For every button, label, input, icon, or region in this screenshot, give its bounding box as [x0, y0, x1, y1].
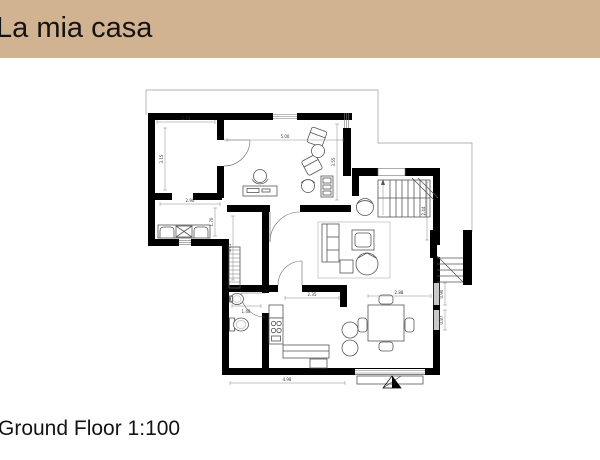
- toilet-icon: [230, 318, 249, 331]
- round-chair-icon: [357, 199, 374, 216]
- lounge-chair-icon: [342, 340, 358, 356]
- side-chair-icon: [301, 180, 315, 193]
- dim-label: 2.44: [421, 206, 426, 215]
- page-title: La mia casa: [0, 12, 152, 45]
- dim-label: 2.35: [308, 292, 317, 297]
- dining-set: [342, 295, 414, 356]
- hall-door-icon: [270, 212, 300, 242]
- dim-label: 5.00: [281, 134, 290, 139]
- window-stairhall-icon: [378, 169, 405, 176]
- terrace-step: [357, 376, 423, 384]
- north-arrow-icon: [383, 376, 401, 388]
- desk-chair-icon: [252, 170, 268, 184]
- study-door-icon: [224, 140, 250, 166]
- dim-label: 2.70: [182, 116, 191, 121]
- kitchen-door-icon: [278, 261, 302, 285]
- exterior-walls: [148, 113, 472, 375]
- window-left-wing-icon: [179, 241, 191, 245]
- dim-label: 3.15: [159, 154, 164, 163]
- terrace-door-icon: [355, 369, 425, 375]
- appliance-icon: [310, 359, 327, 368]
- dim-label: 3.55: [331, 157, 336, 166]
- stove-icon: [269, 318, 283, 344]
- window-top-icon: [273, 115, 297, 119]
- dim-label: 3.15: [227, 243, 232, 252]
- title-bar: La mia casa: [0, 0, 600, 58]
- dim-label: 1.70: [209, 217, 214, 226]
- dim-label: 4.98: [283, 377, 292, 382]
- laundry-counter: [158, 225, 210, 238]
- desk-icon: [243, 186, 277, 196]
- porch-steps: [437, 256, 463, 282]
- dim-label: 0.87: [439, 315, 444, 324]
- dining-table-icon: [368, 305, 404, 341]
- dim-label: 2.88: [395, 290, 404, 295]
- kitchen-fixtures: [269, 305, 329, 368]
- floor-plan: 5.00 3.55 2.70 3.15 2.90 1.70 3.15 1.40 …: [135, 80, 480, 400]
- floor-caption: Ground Floor 1:100: [0, 417, 180, 441]
- dim-label: 0.90: [439, 289, 444, 298]
- lounge-chair-icon: [342, 322, 358, 338]
- dim-label: 1.40: [242, 309, 251, 314]
- cabinet-icon: [321, 176, 333, 197]
- coffee-table-icon: [352, 230, 374, 250]
- armchair-icon: [356, 253, 378, 275]
- side-table-icon: [340, 260, 353, 273]
- sink-icon: [230, 294, 244, 305]
- round-table-icon: [312, 145, 325, 158]
- floor-plan-container: 5.00 3.55 2.70 3.15 2.90 1.70 3.15 1.40 …: [135, 80, 480, 400]
- staircase: [378, 178, 438, 217]
- dim-label: 2.90: [186, 198, 195, 203]
- counter-icon: [283, 345, 329, 358]
- sofa-icon: [322, 224, 339, 262]
